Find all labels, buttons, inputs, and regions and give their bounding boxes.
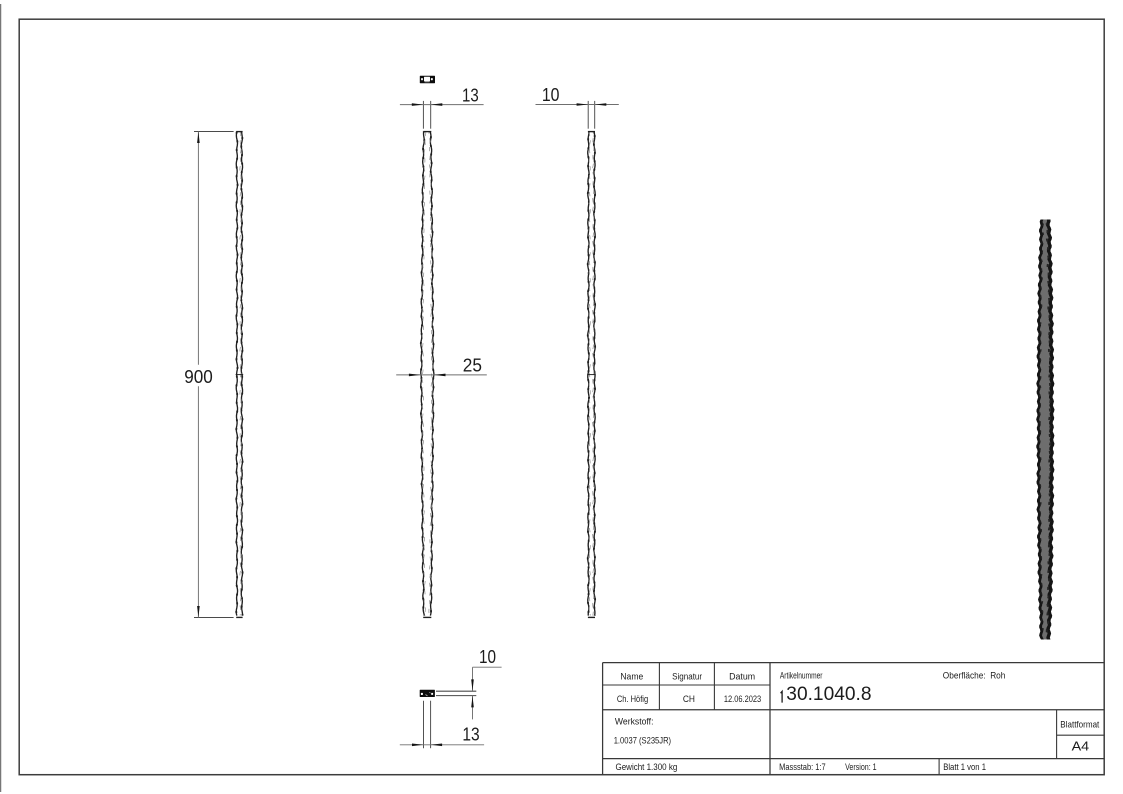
svg-text:Datum: Datum — [729, 672, 755, 682]
svg-text:13: 13 — [462, 723, 479, 744]
svg-text:25: 25 — [463, 354, 482, 375]
svg-text:Gewicht 1.300 kg: Gewicht 1.300 kg — [616, 762, 678, 772]
svg-text:Blatt 1 von 1: Blatt 1 von 1 — [943, 762, 986, 772]
svg-text:Blattformat: Blattformat — [1060, 720, 1099, 730]
svg-text:CH: CH — [683, 694, 695, 704]
svg-text:1.0037 (S235JR): 1.0037 (S235JR) — [614, 736, 671, 746]
svg-text:13: 13 — [462, 84, 479, 105]
svg-text:12.06.2023: 12.06.2023 — [724, 694, 761, 704]
svg-text:10: 10 — [479, 646, 496, 667]
svg-text:A4: A4 — [1072, 739, 1090, 753]
svg-text:Signatur: Signatur — [672, 672, 702, 682]
svg-text:Oberfläche: Roh: Oberfläche: Roh — [943, 670, 1006, 680]
svg-text:900: 900 — [184, 366, 213, 387]
svg-text:Version: 1: Version: 1 — [845, 762, 877, 772]
svg-text:Name: Name — [620, 672, 643, 682]
svg-text:10: 10 — [542, 84, 560, 105]
svg-text:Artikelnummer: Artikelnummer — [780, 671, 823, 681]
svg-text:Ch. Höfig: Ch. Höfig — [617, 694, 648, 704]
svg-text:30.1040.8: 30.1040.8 — [786, 684, 871, 705]
svg-text:Werkstoff:: Werkstoff: — [615, 717, 654, 727]
svg-text:Massstab: 1:7: Massstab: 1:7 — [779, 762, 826, 772]
